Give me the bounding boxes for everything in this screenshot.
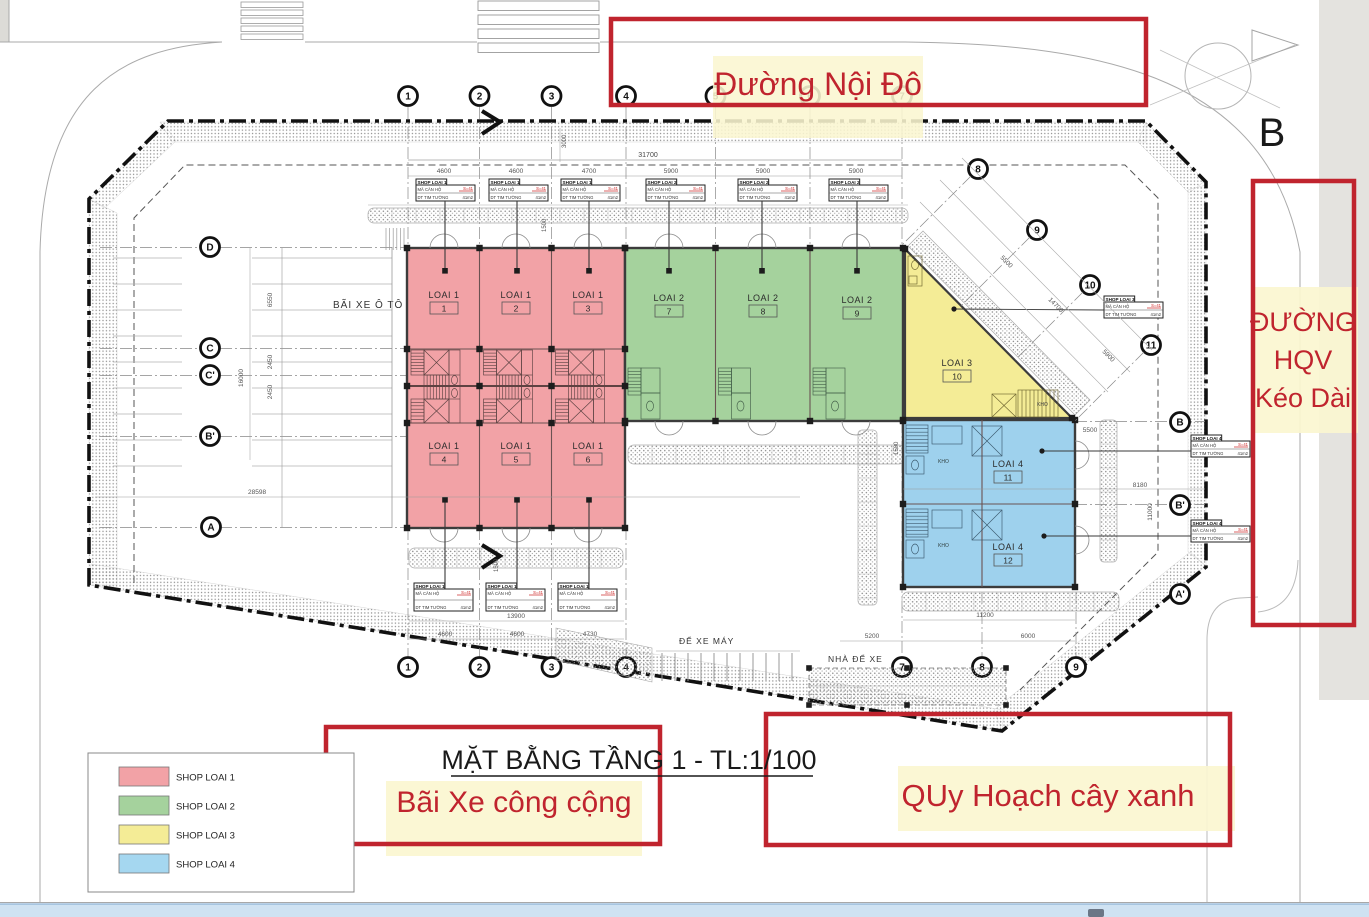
svg-text:11: 11	[1004, 473, 1013, 483]
svg-text:1: 1	[442, 304, 447, 314]
svg-text:SHOP LOẠI 4: SHOP LOẠI 4	[1193, 436, 1222, 441]
svg-text:DT TIM TƯỜNG: DT TIM TƯỜNG	[1193, 451, 1224, 456]
svg-text:41m2: 41m2	[693, 195, 704, 200]
svg-text:10: 10	[1084, 281, 1096, 292]
svg-text:D: D	[206, 243, 213, 254]
svg-text:4700: 4700	[582, 168, 597, 175]
svg-text:ĐỂ XE MÁY: ĐỂ XE MÁY	[679, 635, 734, 646]
svg-text:DT TIM TƯỜNG: DT TIM TƯỜNG	[563, 195, 594, 200]
svg-text:C: C	[206, 344, 213, 355]
svg-text:SHOP LOẠI 3: SHOP LOẠI 3	[1106, 297, 1135, 302]
svg-text:MÃ CĂN HỘ: MÃ CĂN HỘ	[740, 187, 764, 192]
svg-text:SHOP LOẠI 2: SHOP LOẠI 2	[831, 180, 860, 185]
svg-text:KHO: KHO	[938, 459, 949, 465]
svg-text:MẶT BẰNG TẦNG 1 - TL:1/100: MẶT BẰNG TẦNG 1 - TL:1/100	[441, 744, 816, 775]
svg-text:MÃ CĂN HỘ: MÃ CĂN HỘ	[1193, 443, 1217, 448]
svg-text:MÃ CĂN HỘ: MÃ CĂN HỘ	[648, 187, 672, 192]
svg-text:2450: 2450	[267, 354, 274, 369]
svg-text:LOAI 1: LOAI 1	[428, 290, 459, 300]
svg-text:5900: 5900	[664, 168, 679, 175]
svg-text:LOAI 4: LOAI 4	[992, 459, 1023, 469]
svg-text:1500: 1500	[542, 218, 548, 232]
svg-text:9: 9	[1034, 226, 1040, 237]
svg-text:SHOP LOẠI 1: SHOP LOẠI 1	[491, 180, 520, 185]
svg-text:SHOP LOẠI 2: SHOP LOẠI 2	[740, 180, 769, 185]
svg-text:41m2: 41m2	[785, 195, 796, 200]
svg-text:SHOP LOẠI 1: SHOP LOẠI 1	[416, 584, 445, 589]
svg-text:41m2: 41m2	[608, 195, 619, 200]
svg-text:6000: 6000	[1021, 633, 1036, 640]
svg-text:KHO: KHO	[1037, 402, 1048, 408]
svg-text:S=41: S=41	[876, 186, 887, 191]
svg-text:Kéo Dài: Kéo Dài	[1255, 383, 1351, 413]
svg-text:ĐƯỜNG: ĐƯỜNG	[1250, 306, 1356, 337]
svg-text:MÃ CĂN HỘ: MÃ CĂN HỘ	[560, 591, 584, 596]
svg-text:9: 9	[855, 309, 860, 319]
svg-text:1: 1	[405, 92, 411, 103]
svg-text:LOAI 1: LOAI 1	[428, 441, 459, 451]
svg-text:Đường Nội Đô: Đường Nội Đô	[714, 66, 922, 102]
svg-text:41m2: 41m2	[1238, 536, 1249, 541]
svg-text:9: 9	[1073, 663, 1079, 674]
svg-text:3: 3	[586, 304, 591, 314]
svg-text:SHOP LOẠI 4: SHOP LOẠI 4	[1193, 521, 1222, 526]
svg-text:DT TIM TƯỜNG: DT TIM TƯỜNG	[740, 195, 771, 200]
svg-text:KHO: KHO	[938, 543, 949, 549]
svg-text:S=41: S=41	[605, 590, 616, 595]
svg-text:41m2: 41m2	[461, 605, 472, 610]
svg-text:B: B	[1259, 111, 1286, 155]
svg-text:4600: 4600	[437, 168, 452, 175]
svg-text:4600: 4600	[510, 631, 525, 638]
svg-text:41m2: 41m2	[533, 605, 544, 610]
svg-text:LOAI 2: LOAI 2	[653, 293, 684, 303]
svg-text:MÃ CĂN HỘ: MÃ CĂN HỘ	[418, 187, 442, 192]
svg-text:41m2: 41m2	[876, 195, 887, 200]
svg-text:3000: 3000	[562, 134, 568, 148]
svg-text:S=41: S=41	[785, 186, 796, 191]
svg-text:10: 10	[952, 372, 962, 382]
svg-text:A: A	[207, 523, 214, 534]
svg-text:4600: 4600	[438, 631, 453, 638]
svg-text:11000: 11000	[1147, 503, 1154, 521]
svg-text:MÃ CĂN HỘ: MÃ CĂN HỘ	[563, 187, 587, 192]
svg-text:4600: 4600	[509, 168, 524, 175]
svg-text:3: 3	[549, 92, 555, 103]
svg-text:5200: 5200	[865, 633, 880, 640]
svg-text:MÃ CĂN HỘ: MÃ CĂN HỘ	[488, 591, 512, 596]
svg-text:SHOP LOẠI 1: SHOP LOẠI 1	[488, 584, 517, 589]
svg-text:SHOP LOAI 2: SHOP LOAI 2	[176, 802, 235, 813]
svg-text:SHOP LOẠI 1: SHOP LOẠI 1	[418, 180, 447, 185]
svg-text:BÃI XE Ô TÔ: BÃI XE Ô TÔ	[333, 298, 403, 311]
svg-text:DT TIM TƯỜNG: DT TIM TƯỜNG	[1193, 536, 1224, 541]
svg-text:DT TIM TƯỜNG: DT TIM TƯỜNG	[488, 605, 519, 610]
svg-text:4: 4	[442, 455, 447, 465]
svg-text:QUy Hoạch cây xanh: QUy Hoạch cây xanh	[902, 778, 1195, 813]
svg-text:MÃ CĂN HỘ: MÃ CĂN HỘ	[1193, 528, 1217, 533]
svg-text:DT TIM TƯỜNG: DT TIM TƯỜNG	[1106, 312, 1137, 317]
svg-text:6: 6	[586, 455, 591, 465]
svg-text:S=41: S=41	[1238, 442, 1249, 447]
svg-text:1: 1	[405, 663, 411, 674]
svg-text:41m2: 41m2	[1238, 451, 1249, 456]
svg-text:LOAI 4: LOAI 4	[992, 542, 1023, 552]
svg-text:LOAI 1: LOAI 1	[572, 441, 603, 451]
svg-text:S=41: S=41	[463, 186, 474, 191]
svg-text:LOAI 2: LOAI 2	[747, 293, 778, 303]
svg-text:Bãi Xe công cộng: Bãi Xe công cộng	[396, 786, 631, 819]
svg-text:DT TIM TƯỜNG: DT TIM TƯỜNG	[560, 605, 591, 610]
svg-text:MÃ CĂN HỘ: MÃ CĂN HỘ	[831, 187, 855, 192]
svg-text:2: 2	[514, 304, 519, 314]
svg-text:5500: 5500	[1083, 427, 1098, 434]
svg-text:B: B	[1176, 418, 1183, 429]
svg-text:B': B'	[205, 432, 215, 443]
svg-text:41m2: 41m2	[1151, 312, 1162, 317]
svg-text:MÃ CĂN HỘ: MÃ CĂN HỘ	[491, 187, 515, 192]
svg-text:LOAI 1: LOAI 1	[500, 290, 531, 300]
svg-text:DT TIM TƯỜNG: DT TIM TƯỜNG	[491, 195, 522, 200]
svg-text:C': C'	[205, 371, 215, 382]
svg-text:13900: 13900	[507, 613, 525, 620]
svg-text:DT TIM TƯỜNG: DT TIM TƯỜNG	[831, 195, 862, 200]
svg-text:2: 2	[477, 92, 483, 103]
svg-text:8180: 8180	[1133, 482, 1148, 489]
svg-text:SHOP LOẠI 2: SHOP LOẠI 2	[648, 180, 677, 185]
svg-text:2450: 2450	[267, 384, 274, 399]
svg-text:S=41: S=41	[461, 590, 472, 595]
svg-text:5900: 5900	[756, 168, 771, 175]
svg-text:SHOP LOAI 1: SHOP LOAI 1	[176, 773, 235, 784]
svg-text:A': A'	[1175, 590, 1185, 601]
svg-text:1500: 1500	[894, 441, 900, 455]
svg-text:S=41: S=41	[533, 590, 544, 595]
svg-text:S=41: S=41	[536, 186, 547, 191]
svg-text:5900: 5900	[849, 168, 864, 175]
svg-text:SHOP LOẠI 1: SHOP LOẠI 1	[560, 584, 589, 589]
svg-text:LOAI 2: LOAI 2	[841, 295, 872, 305]
svg-text:DT TIM TƯỜNG: DT TIM TƯỜNG	[416, 605, 447, 610]
svg-text:12: 12	[1003, 556, 1013, 566]
svg-text:DT TIM TƯỜNG: DT TIM TƯỜNG	[418, 195, 449, 200]
svg-text:LOAI 1: LOAI 1	[572, 290, 603, 300]
svg-text:S=41: S=41	[1238, 527, 1249, 532]
svg-text:LOAI 1: LOAI 1	[500, 441, 531, 451]
svg-text:41m2: 41m2	[536, 195, 547, 200]
svg-text:11200: 11200	[976, 612, 994, 619]
svg-text:41m2: 41m2	[463, 195, 474, 200]
svg-text:NHÀ ĐỂ XE: NHÀ ĐỂ XE	[828, 653, 883, 664]
svg-text:S=41: S=41	[608, 186, 619, 191]
svg-text:5: 5	[514, 455, 519, 465]
svg-text:S=41: S=41	[693, 186, 704, 191]
svg-text:2: 2	[477, 663, 483, 674]
svg-text:MÃ CĂN HỘ: MÃ CĂN HỘ	[416, 591, 440, 596]
svg-text:41m2: 41m2	[605, 605, 616, 610]
svg-text:LOAI 3: LOAI 3	[941, 358, 972, 368]
svg-text:7: 7	[667, 307, 672, 317]
svg-text:1500: 1500	[494, 558, 500, 572]
svg-text:SHOP LOẠI 1: SHOP LOẠI 1	[563, 180, 592, 185]
svg-text:11: 11	[1146, 341, 1157, 352]
svg-text:HQV: HQV	[1274, 345, 1333, 375]
svg-text:8: 8	[975, 165, 981, 176]
svg-text:SHOP LOAI 3: SHOP LOAI 3	[176, 831, 235, 842]
svg-text:8: 8	[761, 307, 766, 317]
svg-text:SHOP LOAI 4: SHOP LOAI 4	[176, 860, 235, 871]
svg-text:28598: 28598	[248, 489, 266, 496]
svg-text:3: 3	[549, 663, 555, 674]
svg-text:B': B'	[1175, 501, 1185, 512]
svg-text:16000: 16000	[238, 369, 245, 387]
svg-text:S=41: S=41	[1151, 303, 1162, 308]
svg-text:4: 4	[623, 92, 629, 103]
svg-text:DT TIM TƯỜNG: DT TIM TƯỜNG	[648, 195, 679, 200]
svg-text:31700: 31700	[638, 152, 658, 159]
svg-text:6550: 6550	[267, 292, 274, 307]
